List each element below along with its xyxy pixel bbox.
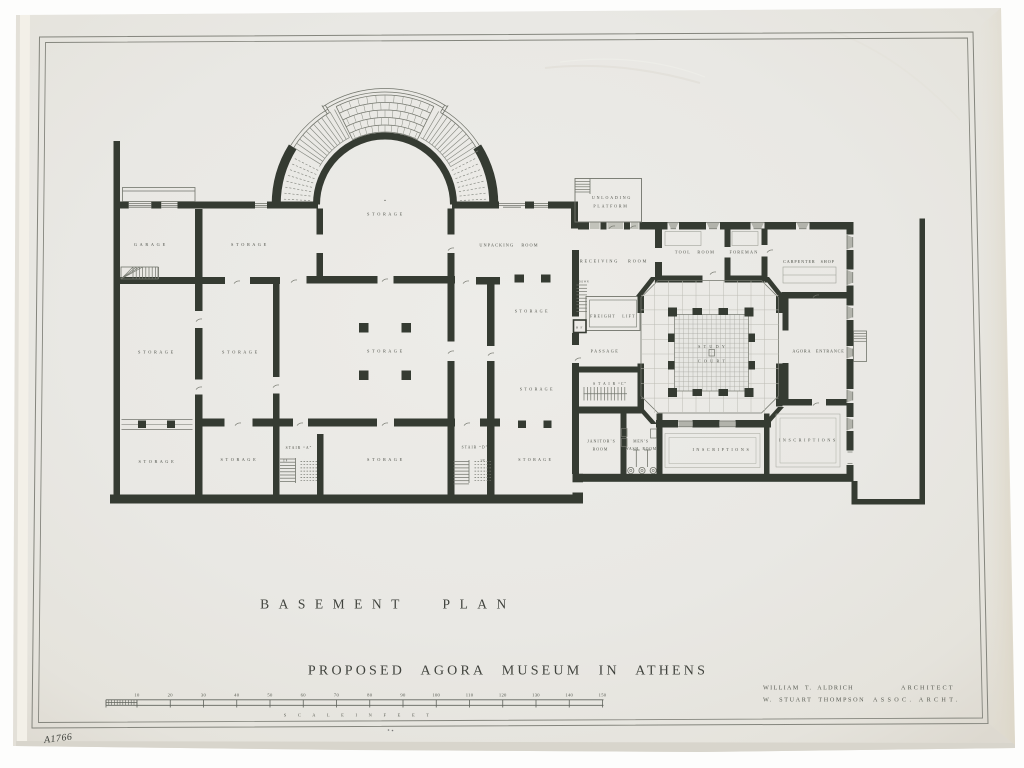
svg-text:AGORA ENTRANCE: AGORA ENTRANCE <box>792 349 844 354</box>
svg-text:W. STUART THOMPSON: W. STUART THOMPSON <box>763 697 865 704</box>
svg-text:UP: UP <box>481 459 486 462</box>
svg-text:20: 20 <box>168 693 174 698</box>
svg-text:S T O R A G E: S T O R A G E <box>515 309 549 314</box>
svg-text:JANITOR’S: JANITOR’S <box>587 440 616 444</box>
svg-text:S T O R A G E: S T O R A G E <box>220 457 256 462</box>
svg-text:30: 30 <box>201 693 207 698</box>
svg-text:130: 130 <box>532 693 540 698</box>
svg-text:120: 120 <box>499 693 507 698</box>
svg-text:UNPACKING ROOM: UNPACKING ROOM <box>479 243 538 248</box>
svg-text:STAIR “A”: STAIR “A” <box>286 445 313 450</box>
svg-text:110: 110 <box>466 693 474 698</box>
svg-text:S T O R A G E: S T O R A G E <box>231 242 267 247</box>
svg-text:G A R A G E: G A R A G E <box>134 242 166 247</box>
svg-text:S T O R A G E: S T O R A G E <box>138 459 174 464</box>
svg-text:150: 150 <box>599 693 607 698</box>
svg-text:S T O R A G E: S T O R A G E <box>367 349 403 354</box>
svg-text:S T O R A G E: S T O R A G E <box>367 457 403 462</box>
svg-text:140: 140 <box>565 693 573 698</box>
svg-text:S T O R A G E: S T O R A G E <box>520 387 554 392</box>
svg-text:50: 50 <box>267 693 273 698</box>
svg-text:FREIGHT LIFT: FREIGHT LIFT <box>590 314 636 319</box>
svg-text:S T O R A G E: S T O R A G E <box>138 350 174 355</box>
svg-text:40: 40 <box>234 693 240 698</box>
svg-text:TOOL ROOM: TOOL ROOM <box>675 250 715 255</box>
svg-text:S T O R A G E: S T O R A G E <box>367 212 403 217</box>
svg-text:60: 60 <box>301 693 307 698</box>
svg-text:C O U R T: C O U R T <box>698 359 726 364</box>
svg-text:FOREMAN: FOREMAN <box>730 250 759 255</box>
svg-text:10: 10 <box>134 693 140 698</box>
svg-text:ROOM: ROOM <box>593 448 609 452</box>
svg-text:UNLOADING: UNLOADING <box>592 195 632 200</box>
svg-text:ASSOC. ARCHT.: ASSOC. ARCHT. <box>873 697 961 704</box>
svg-text:80: 80 <box>367 693 373 698</box>
svg-text:ARCHITECT: ARCHITECT <box>901 685 955 692</box>
svg-text:I N S C R I P T I O N S: I N S C R I P T I O N S <box>692 447 749 452</box>
svg-text:100: 100 <box>432 693 440 698</box>
svg-text:I N S C R I P T I O N S: I N S C R I P T I O N S <box>779 438 836 443</box>
svg-text:PLATFORM: PLATFORM <box>593 204 628 209</box>
svg-text:BASEMENT PLAN: BASEMENT PLAN <box>260 597 516 612</box>
svg-text:B F: B F <box>576 326 583 330</box>
svg-text:S T A I R “C”: S T A I R “C” <box>593 381 627 386</box>
svg-text:70: 70 <box>334 693 340 698</box>
svg-text:S T U D Y: S T U D Y <box>698 344 726 349</box>
svg-text:PASSAGE: PASSAGE <box>591 349 620 354</box>
svg-text:S C A L E I N F E E T: S C A L E I N F E E T <box>284 713 431 718</box>
svg-text:DOWN: DOWN <box>579 281 589 284</box>
svg-text:S T O R A G E: S T O R A G E <box>518 457 552 462</box>
svg-text:RECEIVING ROOM: RECEIVING ROOM <box>580 259 648 264</box>
svg-text:CARPENTER SHOP: CARPENTER SHOP <box>783 259 835 264</box>
svg-text:90: 90 <box>400 693 406 698</box>
svg-text:PROPOSED AGORA MUSEUM IN ATHEN: PROPOSED AGORA MUSEUM IN ATHENS <box>308 664 708 679</box>
svg-text:STAIR “D”: STAIR “D” <box>462 445 489 450</box>
svg-text:S T O R A G E: S T O R A G E <box>222 350 258 355</box>
svg-text:UP: UP <box>283 460 288 463</box>
svg-text:WASH ROOM: WASH ROOM <box>625 447 657 451</box>
svg-text:MEN’S: MEN’S <box>633 440 648 444</box>
svg-text:WILLIAM T. ALDRICH: WILLIAM T. ALDRICH <box>763 685 854 692</box>
